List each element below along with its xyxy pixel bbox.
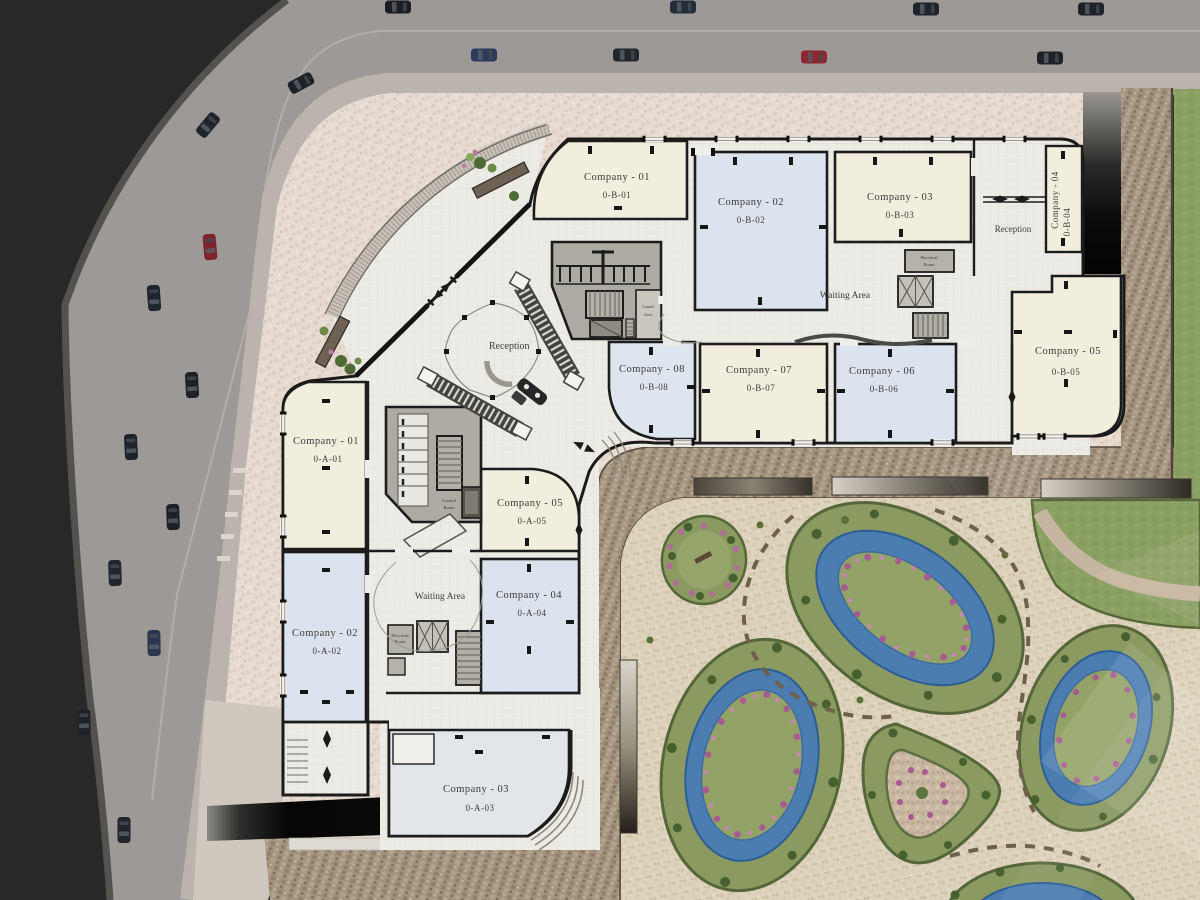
svg-text:0-B-01: 0-B-01 <box>603 190 632 200</box>
svg-text:Reception: Reception <box>995 224 1032 234</box>
svg-text:Guard: Guard <box>642 304 654 309</box>
svg-text:0-A-03: 0-A-03 <box>466 803 495 813</box>
svg-text:Company - 01: Company - 01 <box>584 172 650 183</box>
svg-text:Control: Control <box>442 498 457 503</box>
svg-text:Company - 05: Company - 05 <box>1035 346 1101 357</box>
svg-text:0-B-05: 0-B-05 <box>1052 367 1081 377</box>
svg-text:0-A-02: 0-A-02 <box>313 646 342 656</box>
svg-text:Company - 02: Company - 02 <box>718 197 784 208</box>
svg-text:0-B-04: 0-B-04 <box>1062 208 1072 237</box>
svg-text:Waiting Area: Waiting Area <box>415 592 466 602</box>
svg-text:0-A-04: 0-A-04 <box>518 608 547 618</box>
svg-text:0-A-01: 0-A-01 <box>314 454 343 464</box>
svg-text:Company - 06: Company - 06 <box>849 366 915 377</box>
svg-text:Company - 04: Company - 04 <box>496 590 562 601</box>
svg-text:0-B-02: 0-B-02 <box>737 215 766 225</box>
svg-text:Company - 05: Company - 05 <box>497 498 563 509</box>
svg-text:Company - 08: Company - 08 <box>619 364 685 375</box>
svg-text:Area: Area <box>644 312 653 317</box>
svg-text:0-B-03: 0-B-03 <box>886 210 915 220</box>
svg-text:Company - 01: Company - 01 <box>293 436 359 447</box>
svg-text:0-B-08: 0-B-08 <box>640 382 669 392</box>
svg-text:Room: Room <box>923 262 935 267</box>
svg-text:0-B-06: 0-B-06 <box>870 384 899 394</box>
svg-text:Company - 03: Company - 03 <box>443 784 509 795</box>
svg-text:0-A-05: 0-A-05 <box>518 516 547 526</box>
svg-text:Reception: Reception <box>489 341 530 352</box>
svg-text:Company - 07: Company - 07 <box>726 365 792 376</box>
svg-text:Company - 02: Company - 02 <box>292 628 358 639</box>
svg-text:Electrical: Electrical <box>920 255 938 260</box>
svg-text:Company - 04: Company - 04 <box>1050 171 1060 229</box>
svg-text:0-B-07: 0-B-07 <box>747 383 776 393</box>
svg-text:Room: Room <box>443 505 455 510</box>
svg-text:Waiting Area: Waiting Area <box>820 291 871 301</box>
svg-text:Electrical: Electrical <box>391 633 409 638</box>
svg-text:Company - 03: Company - 03 <box>867 192 933 203</box>
